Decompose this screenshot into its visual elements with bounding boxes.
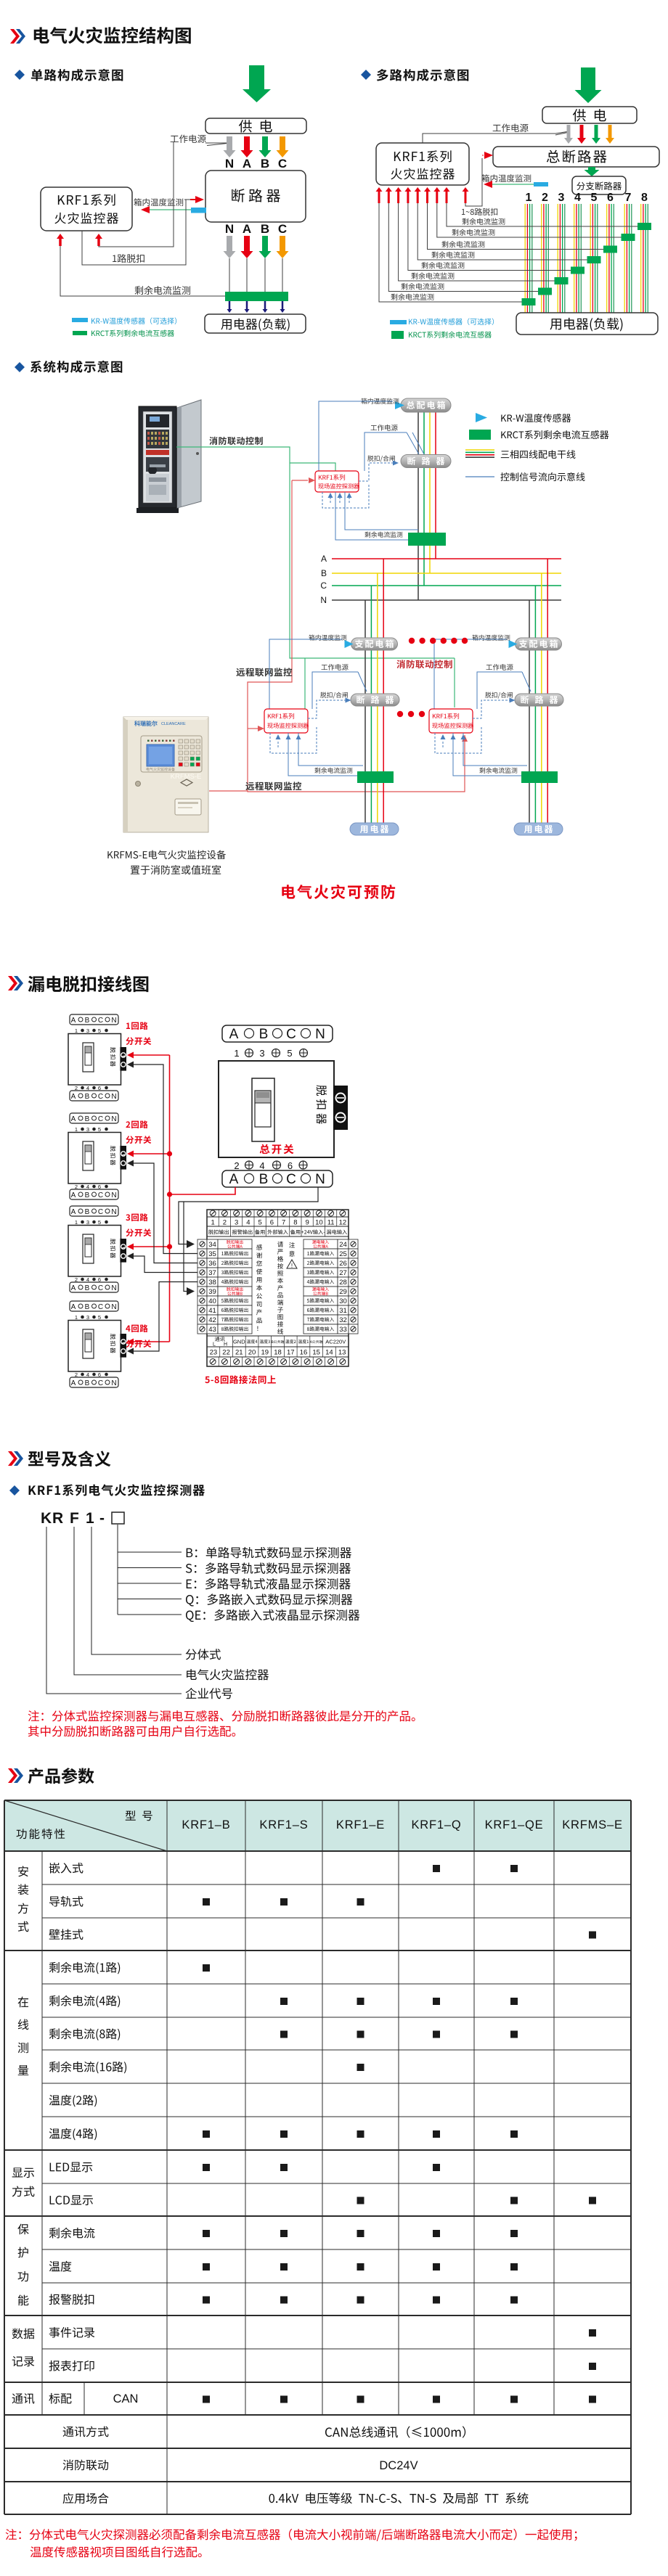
svg-text:!: !	[291, 1263, 293, 1269]
svg-text:5: 5	[287, 1048, 292, 1059]
svg-text:5: 5	[258, 1219, 261, 1227]
svg-text:DC24V: DC24V	[379, 2459, 417, 2472]
svg-text:N: N	[111, 1093, 116, 1101]
svg-text:1: 1	[86, 1510, 94, 1527]
svg-text:38: 38	[208, 1279, 216, 1287]
svg-text:KRF1–B: KRF1–B	[182, 1818, 230, 1831]
svg-text:42: 42	[208, 1316, 216, 1324]
svg-text:B: B	[85, 1208, 90, 1216]
svg-text:4: 4	[246, 1219, 250, 1227]
svg-text:C: C	[98, 1284, 103, 1292]
svg-text:6: 6	[607, 192, 614, 204]
svg-text:3: 3	[86, 1126, 89, 1133]
svg-text:A: A	[71, 1303, 76, 1311]
svg-text:N: N	[111, 1379, 116, 1387]
svg-text:3: 3	[86, 1027, 89, 1034]
svg-text:C: C	[98, 1303, 103, 1311]
svg-text:1: 1	[526, 192, 532, 204]
svg-text:7: 7	[282, 1219, 285, 1227]
svg-text:AC220V: AC220V	[325, 1339, 346, 1345]
svg-text:A: A	[229, 1172, 239, 1187]
svg-text:A: A	[71, 1093, 76, 1101]
svg-text:C: C	[320, 581, 327, 591]
svg-text:26: 26	[339, 1260, 347, 1268]
svg-text:2: 2	[223, 1219, 227, 1227]
svg-text:B: B	[85, 1093, 90, 1101]
svg-text:10: 10	[315, 1219, 323, 1227]
svg-text:N: N	[111, 1303, 116, 1311]
svg-text:4: 4	[574, 192, 581, 204]
svg-text:C: C	[98, 1208, 103, 1216]
svg-text:33: 33	[339, 1326, 347, 1334]
svg-text:B: B	[85, 1191, 90, 1199]
svg-text:B: B	[85, 1379, 90, 1387]
svg-text:B: B	[85, 1017, 90, 1025]
svg-text:CAN: CAN	[113, 2392, 139, 2405]
svg-text:N: N	[111, 1017, 116, 1025]
svg-text:B: B	[259, 1172, 269, 1187]
svg-text:N: N	[320, 595, 327, 605]
svg-text:23: 23	[210, 1349, 218, 1357]
svg-text:34: 34	[208, 1241, 216, 1249]
svg-text:1: 1	[75, 1314, 78, 1321]
svg-text:25: 25	[339, 1250, 347, 1258]
svg-text:C: C	[98, 1191, 103, 1199]
svg-text:21: 21	[235, 1349, 243, 1357]
svg-text:35: 35	[208, 1250, 216, 1258]
svg-text:A: A	[71, 1208, 76, 1216]
svg-text:N: N	[111, 1191, 116, 1199]
svg-text:3: 3	[259, 1048, 264, 1059]
svg-text:A: A	[321, 554, 327, 564]
svg-text:24: 24	[339, 1241, 347, 1249]
svg-text:3: 3	[235, 1219, 238, 1227]
svg-text:1: 1	[75, 1027, 78, 1034]
svg-text:C: C	[98, 1017, 103, 1025]
svg-text:39: 39	[208, 1288, 216, 1296]
svg-text:GND: GND	[233, 1339, 245, 1345]
svg-text:KRF1–S: KRF1–S	[259, 1818, 308, 1831]
svg-text:27: 27	[339, 1269, 347, 1277]
svg-text:N: N	[315, 1027, 325, 1042]
svg-text:12: 12	[339, 1219, 347, 1227]
svg-text:N: N	[111, 1115, 116, 1123]
svg-text:A: A	[243, 222, 251, 236]
svg-text:5: 5	[98, 1027, 101, 1034]
svg-text:F: F	[70, 1510, 79, 1527]
svg-text:6: 6	[288, 1160, 293, 1171]
svg-text:A: A	[71, 1017, 76, 1025]
svg-text:11: 11	[327, 1219, 335, 1227]
svg-text:19: 19	[261, 1349, 269, 1357]
svg-text:N: N	[225, 222, 234, 236]
svg-text:40: 40	[208, 1297, 216, 1305]
svg-text:17: 17	[287, 1349, 295, 1357]
svg-text:4: 4	[259, 1160, 264, 1171]
svg-text:C: C	[98, 1115, 103, 1123]
svg-text:14: 14	[325, 1349, 333, 1357]
svg-text:B: B	[321, 568, 327, 578]
svg-text:C: C	[98, 1093, 103, 1101]
svg-text:A: A	[243, 157, 251, 171]
svg-text:9: 9	[305, 1219, 309, 1227]
svg-text:C: C	[286, 1172, 296, 1187]
svg-text:KRF1–QE: KRF1–QE	[485, 1818, 544, 1831]
svg-text:5: 5	[98, 1219, 101, 1226]
svg-text:A: A	[71, 1115, 76, 1123]
svg-text:A: A	[229, 1027, 239, 1042]
svg-text:A: A	[71, 1284, 76, 1292]
svg-text:37: 37	[208, 1269, 216, 1277]
svg-text:CLEANCARE: CLEANCARE	[161, 722, 186, 726]
svg-text:1: 1	[75, 1126, 78, 1133]
svg-text:30: 30	[339, 1297, 347, 1305]
svg-text:5: 5	[98, 1126, 101, 1133]
svg-text:18: 18	[274, 1349, 282, 1357]
svg-text:H: H	[224, 1342, 227, 1348]
svg-text:N: N	[111, 1284, 116, 1292]
svg-text:3: 3	[86, 1314, 89, 1321]
svg-text:B: B	[85, 1303, 90, 1311]
svg-text:B: B	[261, 222, 269, 236]
svg-text:13: 13	[338, 1349, 346, 1357]
svg-text:C: C	[278, 222, 287, 236]
svg-text:15: 15	[312, 1349, 320, 1357]
svg-text:22: 22	[222, 1349, 230, 1357]
svg-text:43: 43	[208, 1326, 216, 1334]
svg-text:A: A	[71, 1191, 76, 1199]
svg-text:5: 5	[98, 1314, 101, 1321]
svg-text:KRF1–Q: KRF1–Q	[412, 1818, 462, 1831]
svg-text:28: 28	[339, 1279, 347, 1287]
svg-text:C: C	[278, 157, 287, 171]
svg-text:A: A	[71, 1379, 76, 1387]
svg-text:-: -	[99, 1510, 105, 1527]
svg-text:1: 1	[211, 1219, 214, 1227]
svg-text:2: 2	[542, 192, 548, 204]
svg-text:KRFMS–E: KRFMS–E	[562, 1818, 623, 1831]
svg-text:8: 8	[293, 1219, 297, 1227]
svg-text:B: B	[85, 1284, 90, 1292]
svg-text:L: L	[213, 1342, 216, 1348]
svg-text:16: 16	[300, 1349, 308, 1357]
svg-text:B: B	[85, 1115, 90, 1123]
svg-text:6: 6	[270, 1219, 274, 1227]
svg-text:31: 31	[339, 1307, 347, 1315]
svg-text:3: 3	[558, 192, 565, 204]
svg-text:N: N	[225, 157, 234, 171]
svg-text:1: 1	[234, 1048, 239, 1059]
svg-text:29: 29	[339, 1288, 347, 1296]
svg-text:B: B	[259, 1027, 269, 1042]
svg-text:7: 7	[625, 192, 632, 204]
svg-text:3: 3	[86, 1219, 89, 1226]
svg-text:K: K	[41, 1510, 52, 1527]
svg-text:N: N	[315, 1172, 325, 1187]
svg-text:KRF1–E: KRF1–E	[336, 1818, 385, 1831]
svg-text:R: R	[52, 1510, 63, 1527]
svg-text:5: 5	[591, 192, 598, 204]
svg-text:32: 32	[339, 1316, 347, 1324]
svg-text:8: 8	[641, 192, 648, 204]
svg-text:N: N	[111, 1208, 116, 1216]
svg-text:36: 36	[208, 1260, 216, 1268]
svg-text:C: C	[98, 1379, 103, 1387]
svg-text:20: 20	[248, 1349, 256, 1357]
svg-text:1: 1	[75, 1219, 78, 1226]
svg-text:41: 41	[208, 1307, 216, 1315]
svg-text:C: C	[286, 1027, 296, 1042]
svg-text:B: B	[261, 157, 269, 171]
svg-text:2: 2	[234, 1160, 239, 1171]
